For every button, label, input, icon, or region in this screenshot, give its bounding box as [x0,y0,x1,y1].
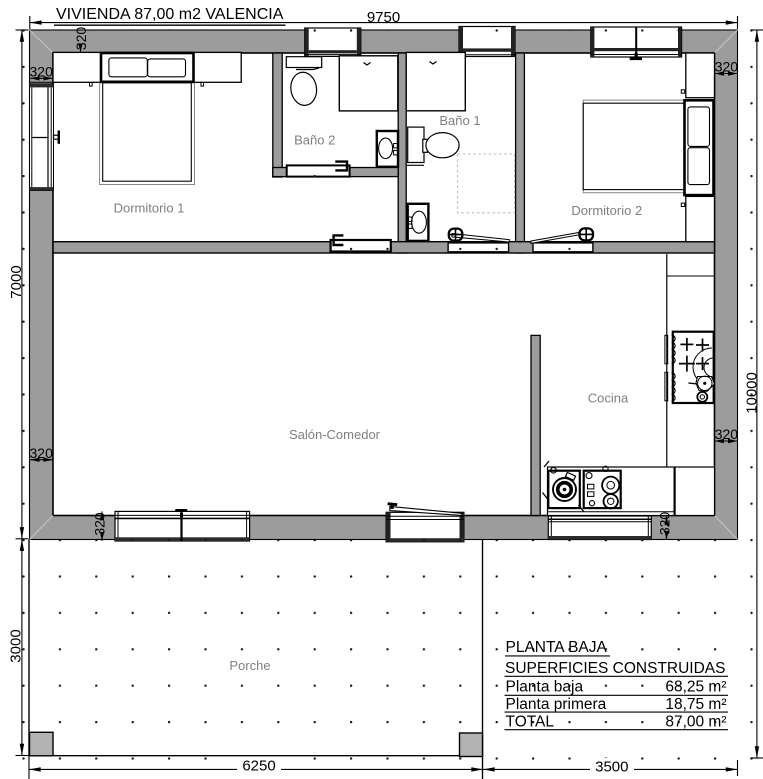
svg-text:320: 320 [91,512,107,536]
svg-text:Porche: Porche [229,658,270,673]
svg-text:Salón-Comedor: Salón-Comedor [289,427,381,442]
svg-text:10000: 10000 [744,372,761,414]
svg-text:PLANTA BAJA: PLANTA BAJA [506,639,608,656]
svg-text:VIVIENDA 87,00 m2 VALENCIA: VIVIENDA 87,00 m2 VALENCIA [56,6,284,23]
svg-text:SUPERFICIES CONSTRUIDAS: SUPERFICIES CONSTRUIDAS [505,660,725,677]
svg-text:Cocina: Cocina [588,391,629,406]
svg-text:TOTAL: TOTAL [506,714,555,731]
svg-text:320: 320 [715,59,739,75]
svg-text:Dormitorio 2: Dormitorio 2 [571,203,642,218]
svg-text:320: 320 [30,445,54,461]
svg-text:Planta baja: Planta baja [506,679,584,696]
svg-text:7000: 7000 [8,265,25,298]
svg-text:18,75 m²: 18,75 m² [665,696,726,713]
svg-text:Baño 1: Baño 1 [439,113,480,128]
svg-text:87,00 m²: 87,00 m² [665,714,726,731]
svg-text:320: 320 [715,426,739,442]
svg-text:320: 320 [657,512,673,536]
svg-text:Dormitorio 1: Dormitorio 1 [114,201,185,216]
svg-text:9750: 9750 [367,9,400,26]
svg-text:320: 320 [30,64,54,80]
svg-text:320: 320 [73,27,89,51]
svg-text:68,25 m²: 68,25 m² [665,679,726,696]
svg-text:3500: 3500 [595,759,628,776]
svg-text:3000: 3000 [7,629,24,662]
svg-text:6250: 6250 [242,757,275,774]
svg-text:Planta primera: Planta primera [506,696,607,713]
svg-text:Baño 2: Baño 2 [294,133,335,148]
